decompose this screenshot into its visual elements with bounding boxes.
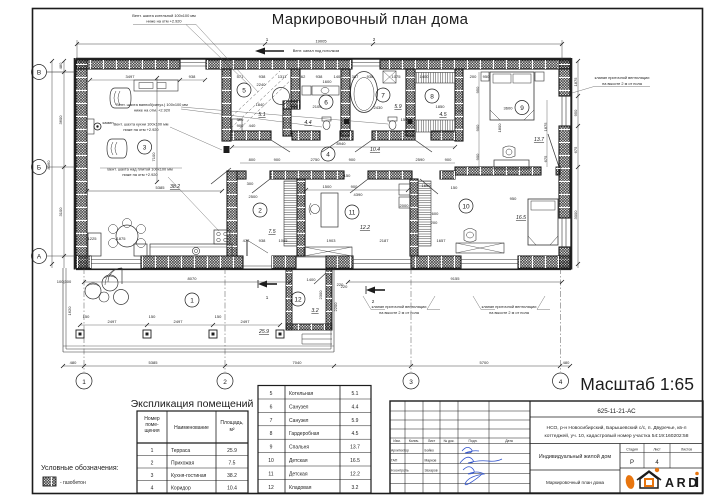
svg-text:2750: 2750 bbox=[311, 157, 321, 162]
svg-text:6: 6 bbox=[324, 100, 328, 107]
svg-text:440: 440 bbox=[249, 123, 256, 128]
svg-text:В: В bbox=[37, 70, 41, 77]
svg-text:5.1: 5.1 bbox=[352, 391, 359, 397]
svg-text:3600: 3600 bbox=[504, 106, 514, 111]
svg-text:1875: 1875 bbox=[573, 77, 578, 87]
svg-text:3.2: 3.2 bbox=[352, 485, 359, 491]
svg-text:1850: 1850 bbox=[436, 104, 446, 109]
svg-text:480: 480 bbox=[70, 360, 77, 365]
svg-text:Спальня: Спальня bbox=[289, 445, 309, 451]
svg-text:9155: 9155 bbox=[451, 276, 461, 281]
svg-text:10.4: 10.4 bbox=[370, 147, 380, 153]
svg-text:на высоте 2 м от пола: на высоте 2 м от пола bbox=[489, 310, 530, 315]
svg-text:220: 220 bbox=[341, 284, 348, 289]
svg-text:477: 477 bbox=[243, 238, 250, 243]
svg-text:- газобетон: - газобетон bbox=[60, 480, 86, 486]
svg-text:938: 938 bbox=[259, 74, 266, 79]
svg-text:3000: 3000 bbox=[573, 210, 578, 220]
svg-text:Вент. шахта ванной(сануз.) 100: Вент. шахта ванной(сануз.) 100х100 мм bbox=[116, 102, 188, 107]
svg-text:900: 900 bbox=[445, 157, 452, 162]
svg-text:5.9: 5.9 bbox=[394, 104, 401, 110]
svg-text:500: 500 bbox=[237, 117, 244, 122]
svg-text:Бойко: Бойко bbox=[425, 449, 435, 453]
svg-text:Вент. шахта котельной 100х100: Вент. шахта котельной 100х100 мм bbox=[132, 13, 196, 18]
svg-text:клапан приточной вентиляции: клапан приточной вентиляции bbox=[372, 304, 427, 309]
svg-text:16.5: 16.5 bbox=[516, 215, 526, 221]
svg-text:900: 900 bbox=[237, 123, 244, 128]
svg-text:5385: 5385 bbox=[149, 360, 159, 365]
svg-text:950: 950 bbox=[573, 109, 578, 116]
svg-text:Терраса: Терраса bbox=[171, 448, 190, 454]
svg-text:коттеджей, уч. 10, кадастровый: коттеджей, уч. 10, кадастровый номер уча… bbox=[545, 432, 689, 439]
svg-text:16.5: 16.5 bbox=[350, 458, 360, 464]
svg-text:Санузел: Санузел bbox=[289, 404, 309, 410]
svg-text:5.9: 5.9 bbox=[352, 418, 359, 424]
svg-text:625-11-21-АС: 625-11-21-АС bbox=[597, 408, 636, 415]
svg-text:938: 938 bbox=[367, 74, 374, 79]
svg-text:10: 10 bbox=[462, 204, 470, 211]
svg-text:2: 2 bbox=[373, 37, 376, 42]
svg-text:200: 200 bbox=[431, 220, 438, 225]
svg-text:4.5: 4.5 bbox=[352, 431, 359, 437]
svg-text:1: 1 bbox=[151, 448, 154, 454]
svg-text:600: 600 bbox=[432, 211, 439, 216]
svg-text:Наименование: Наименование bbox=[174, 425, 209, 431]
svg-text:Прихожая: Прихожая bbox=[171, 461, 194, 467]
svg-text:2: 2 bbox=[151, 461, 154, 467]
svg-text:ниже на отм +2.920: ниже на отм +2.920 bbox=[146, 19, 182, 24]
svg-text:Маркировочный план дома: Маркировочный план дома bbox=[546, 479, 605, 485]
svg-text:1: 1 bbox=[266, 295, 269, 300]
svg-text:5.1: 5.1 bbox=[258, 112, 265, 118]
svg-text:900: 900 bbox=[475, 153, 480, 160]
svg-text:1400: 1400 bbox=[334, 74, 344, 79]
svg-text:4390: 4390 bbox=[354, 192, 364, 197]
svg-text:ARD: ARD bbox=[665, 476, 700, 490]
svg-text:200: 200 bbox=[457, 108, 464, 113]
svg-text:4: 4 bbox=[151, 486, 154, 492]
svg-text:150: 150 bbox=[83, 314, 90, 319]
svg-text:1690: 1690 bbox=[422, 183, 432, 188]
svg-text:7: 7 bbox=[270, 418, 273, 424]
svg-text:2100: 2100 bbox=[313, 104, 323, 109]
svg-text:1620: 1620 bbox=[67, 306, 72, 316]
svg-text:25.9: 25.9 bbox=[227, 448, 237, 454]
svg-text:2200: 2200 bbox=[333, 302, 338, 312]
svg-text:3: 3 bbox=[409, 379, 413, 386]
svg-text:Р: Р bbox=[630, 460, 634, 466]
svg-text:Лист: Лист bbox=[428, 439, 436, 443]
svg-text:12.2: 12.2 bbox=[360, 225, 370, 231]
svg-text:2497: 2497 bbox=[108, 319, 118, 324]
svg-text:7100: 7100 bbox=[151, 152, 156, 162]
svg-text:900: 900 bbox=[351, 184, 358, 189]
svg-text:Условные обозначения:: Условные обозначения: bbox=[41, 464, 119, 472]
svg-text:Н.контроль: Н.контроль bbox=[391, 469, 409, 473]
svg-text:8940: 8940 bbox=[337, 141, 347, 146]
svg-text:262: 262 bbox=[299, 74, 306, 79]
svg-text:Санузел: Санузел bbox=[289, 418, 309, 424]
svg-text:Стадия: Стадия bbox=[626, 448, 638, 452]
svg-text:Детская: Детская bbox=[289, 458, 308, 464]
svg-text:12: 12 bbox=[294, 297, 302, 304]
svg-text:6: 6 bbox=[270, 404, 273, 410]
svg-text:Изм.: Изм. bbox=[393, 439, 400, 443]
svg-text:25.9: 25.9 bbox=[258, 329, 269, 335]
svg-text:950: 950 bbox=[475, 86, 480, 93]
svg-text:200: 200 bbox=[470, 74, 477, 79]
svg-text:150: 150 bbox=[401, 117, 408, 122]
svg-text:7: 7 bbox=[381, 93, 385, 100]
svg-text:Коридор: Коридор bbox=[171, 486, 191, 492]
svg-text:на высоте 2 м от пола: на высоте 2 м от пола bbox=[379, 310, 420, 315]
svg-text:1800: 1800 bbox=[497, 123, 502, 133]
svg-text:2300: 2300 bbox=[318, 290, 323, 300]
svg-text:Вент. шахта над плитой 100х100: Вент. шахта над плитой 100х100 мм bbox=[107, 167, 173, 172]
svg-text:№ док.: № док. bbox=[444, 439, 455, 443]
svg-text:ГАП: ГАП bbox=[391, 459, 398, 463]
svg-text:387: 387 bbox=[352, 74, 359, 79]
svg-text:7040: 7040 bbox=[293, 360, 303, 365]
svg-text:клапан приточной вентиляции: клапан приточной вентиляции bbox=[482, 304, 537, 309]
svg-text:3.2: 3.2 bbox=[311, 308, 318, 314]
svg-text:8060: 8060 bbox=[46, 160, 51, 170]
svg-text:3497: 3497 bbox=[126, 74, 136, 79]
svg-text:2000: 2000 bbox=[400, 203, 410, 208]
svg-text:Архитектор: Архитектор bbox=[391, 449, 409, 453]
svg-text:900: 900 bbox=[274, 157, 281, 162]
svg-text:1840: 1840 bbox=[256, 102, 266, 107]
svg-text:Вент. канал под потолком: Вент. канал под потолком bbox=[293, 48, 340, 53]
svg-text:150: 150 bbox=[451, 185, 458, 190]
svg-text:1500: 1500 bbox=[323, 184, 333, 189]
svg-text:2: 2 bbox=[258, 208, 262, 215]
svg-text:19005: 19005 bbox=[315, 39, 327, 44]
svg-text:Котельная: Котельная bbox=[289, 391, 313, 397]
svg-text:Дата: Дата bbox=[505, 439, 513, 443]
svg-text:1875: 1875 bbox=[543, 122, 548, 132]
svg-text:150: 150 bbox=[149, 314, 156, 319]
svg-text:1225: 1225 bbox=[88, 236, 98, 241]
svg-text:Маркировочный план дома: Маркировочный план дома bbox=[272, 11, 469, 28]
svg-text:480: 480 bbox=[58, 62, 63, 69]
svg-text:2430: 2430 bbox=[374, 105, 384, 110]
svg-text:ниже на отм +2.920: ниже на отм +2.920 bbox=[122, 172, 158, 177]
svg-text:3100: 3100 bbox=[58, 207, 63, 217]
svg-text:щения: щения bbox=[144, 428, 159, 434]
svg-text:13.7: 13.7 bbox=[534, 137, 545, 143]
svg-text:7.5: 7.5 bbox=[268, 229, 275, 235]
svg-text:9: 9 bbox=[520, 105, 524, 112]
svg-text:938: 938 bbox=[316, 74, 323, 79]
svg-text:Кладовая: Кладовая bbox=[289, 485, 312, 491]
svg-text:Площадь,: Площадь, bbox=[220, 420, 243, 426]
svg-text:Индивидуальный жилой дом: Индивидуальный жилой дом bbox=[539, 453, 611, 460]
svg-text:Гардеробная: Гардеробная bbox=[289, 431, 320, 437]
svg-text:3600: 3600 bbox=[58, 115, 63, 125]
svg-text:камин: камин bbox=[103, 120, 114, 125]
svg-text:9: 9 bbox=[270, 445, 273, 451]
svg-text:1: 1 bbox=[82, 379, 86, 386]
svg-text:1600: 1600 bbox=[323, 79, 333, 84]
svg-text:675: 675 bbox=[543, 155, 548, 162]
svg-text:Экспликация помещений: Экспликация помещений bbox=[131, 398, 254, 410]
svg-text:1: 1 bbox=[266, 37, 269, 42]
svg-text:4.5: 4.5 bbox=[439, 112, 446, 118]
svg-text:3: 3 bbox=[151, 473, 154, 479]
svg-text:НСО, р-н Новосибирский, Барыше: НСО, р-н Новосибирский, Барышевский с/с,… bbox=[547, 424, 687, 431]
svg-text:1311: 1311 bbox=[278, 74, 287, 79]
svg-text:938: 938 bbox=[189, 74, 196, 79]
svg-text:Подп.: Подп. bbox=[468, 439, 477, 443]
svg-text:Лист: Лист bbox=[653, 448, 661, 452]
svg-text:938: 938 bbox=[259, 238, 266, 243]
svg-text:150: 150 bbox=[344, 173, 351, 178]
svg-text:12.2: 12.2 bbox=[350, 471, 360, 477]
svg-text:7.5: 7.5 bbox=[229, 461, 236, 467]
svg-text:ниже на отм. +2.920: ниже на отм. +2.920 bbox=[134, 108, 171, 113]
svg-text:2590: 2590 bbox=[416, 157, 426, 162]
svg-text:8: 8 bbox=[270, 431, 273, 437]
svg-text:950: 950 bbox=[510, 196, 517, 201]
svg-text:800: 800 bbox=[249, 157, 256, 162]
svg-text:клапан приточной вентиляции: клапан приточной вентиляции bbox=[595, 75, 650, 80]
svg-text:480: 480 bbox=[563, 360, 570, 365]
svg-text:2497: 2497 bbox=[241, 319, 251, 324]
svg-text:4.4: 4.4 bbox=[352, 404, 359, 410]
svg-text:Марков: Марков bbox=[425, 459, 437, 463]
svg-text:1: 1 bbox=[190, 298, 194, 305]
svg-text:Кухня-гостиная: Кухня-гостиная bbox=[171, 473, 207, 479]
svg-text:5700: 5700 bbox=[480, 360, 490, 365]
svg-text:1075: 1075 bbox=[392, 74, 402, 79]
svg-text:1875: 1875 bbox=[117, 236, 127, 241]
svg-text:12: 12 bbox=[268, 485, 274, 491]
svg-text:38.2: 38.2 bbox=[227, 473, 237, 479]
svg-text:11: 11 bbox=[268, 471, 273, 477]
svg-text:5: 5 bbox=[270, 391, 273, 397]
svg-text:150: 150 bbox=[215, 314, 222, 319]
svg-text:1400: 1400 bbox=[307, 277, 317, 282]
svg-text:4.4: 4.4 bbox=[304, 120, 311, 126]
svg-text:38.2: 38.2 bbox=[170, 184, 180, 190]
svg-text:10: 10 bbox=[268, 458, 274, 464]
svg-text:м²: м² bbox=[229, 427, 234, 433]
svg-text:4: 4 bbox=[326, 152, 330, 159]
svg-text:2: 2 bbox=[223, 379, 227, 386]
svg-text:4: 4 bbox=[559, 379, 563, 386]
svg-text:Колич.: Колич. bbox=[409, 439, 419, 443]
svg-text:1903: 1903 bbox=[327, 238, 337, 243]
svg-text:Вент. шахта кухни 100х100 мм: Вент. шахта кухни 100х100 мм bbox=[114, 122, 169, 127]
svg-text:1657: 1657 bbox=[437, 238, 447, 243]
svg-text:2187: 2187 bbox=[380, 238, 390, 243]
svg-text:11: 11 bbox=[349, 210, 356, 217]
svg-text:Масштаб 1:65: Масштаб 1:65 bbox=[580, 374, 694, 394]
svg-text:8070: 8070 bbox=[188, 276, 198, 281]
svg-text:8: 8 bbox=[430, 94, 434, 101]
svg-text:13.7: 13.7 bbox=[350, 445, 360, 451]
svg-text:900: 900 bbox=[349, 157, 356, 162]
svg-text:675: 675 bbox=[573, 146, 578, 153]
svg-text:2240: 2240 bbox=[257, 82, 267, 87]
svg-text:3: 3 bbox=[143, 145, 147, 152]
svg-text:900: 900 bbox=[475, 124, 480, 131]
svg-text:2500: 2500 bbox=[249, 194, 259, 199]
svg-text:5: 5 bbox=[242, 88, 246, 95]
svg-text:А: А bbox=[37, 254, 42, 261]
svg-text:100|300: 100|300 bbox=[57, 279, 72, 284]
svg-text:Б: Б bbox=[37, 165, 41, 172]
svg-text:300: 300 bbox=[247, 181, 254, 186]
svg-text:2497: 2497 bbox=[174, 319, 184, 324]
svg-text:Листов: Листов bbox=[681, 448, 692, 452]
svg-text:Захаров: Захаров bbox=[425, 469, 438, 473]
svg-text:Детская: Детская bbox=[289, 471, 308, 477]
svg-text:950: 950 bbox=[483, 74, 490, 79]
svg-text:5385: 5385 bbox=[156, 185, 166, 190]
svg-text:10.4: 10.4 bbox=[227, 486, 237, 492]
svg-text:ниже на отм +2.920: ниже на отм +2.920 bbox=[123, 127, 159, 132]
svg-text:на высоте 2 м от пола: на высоте 2 м от пола bbox=[602, 81, 643, 86]
svg-text:1400: 1400 bbox=[420, 74, 430, 79]
